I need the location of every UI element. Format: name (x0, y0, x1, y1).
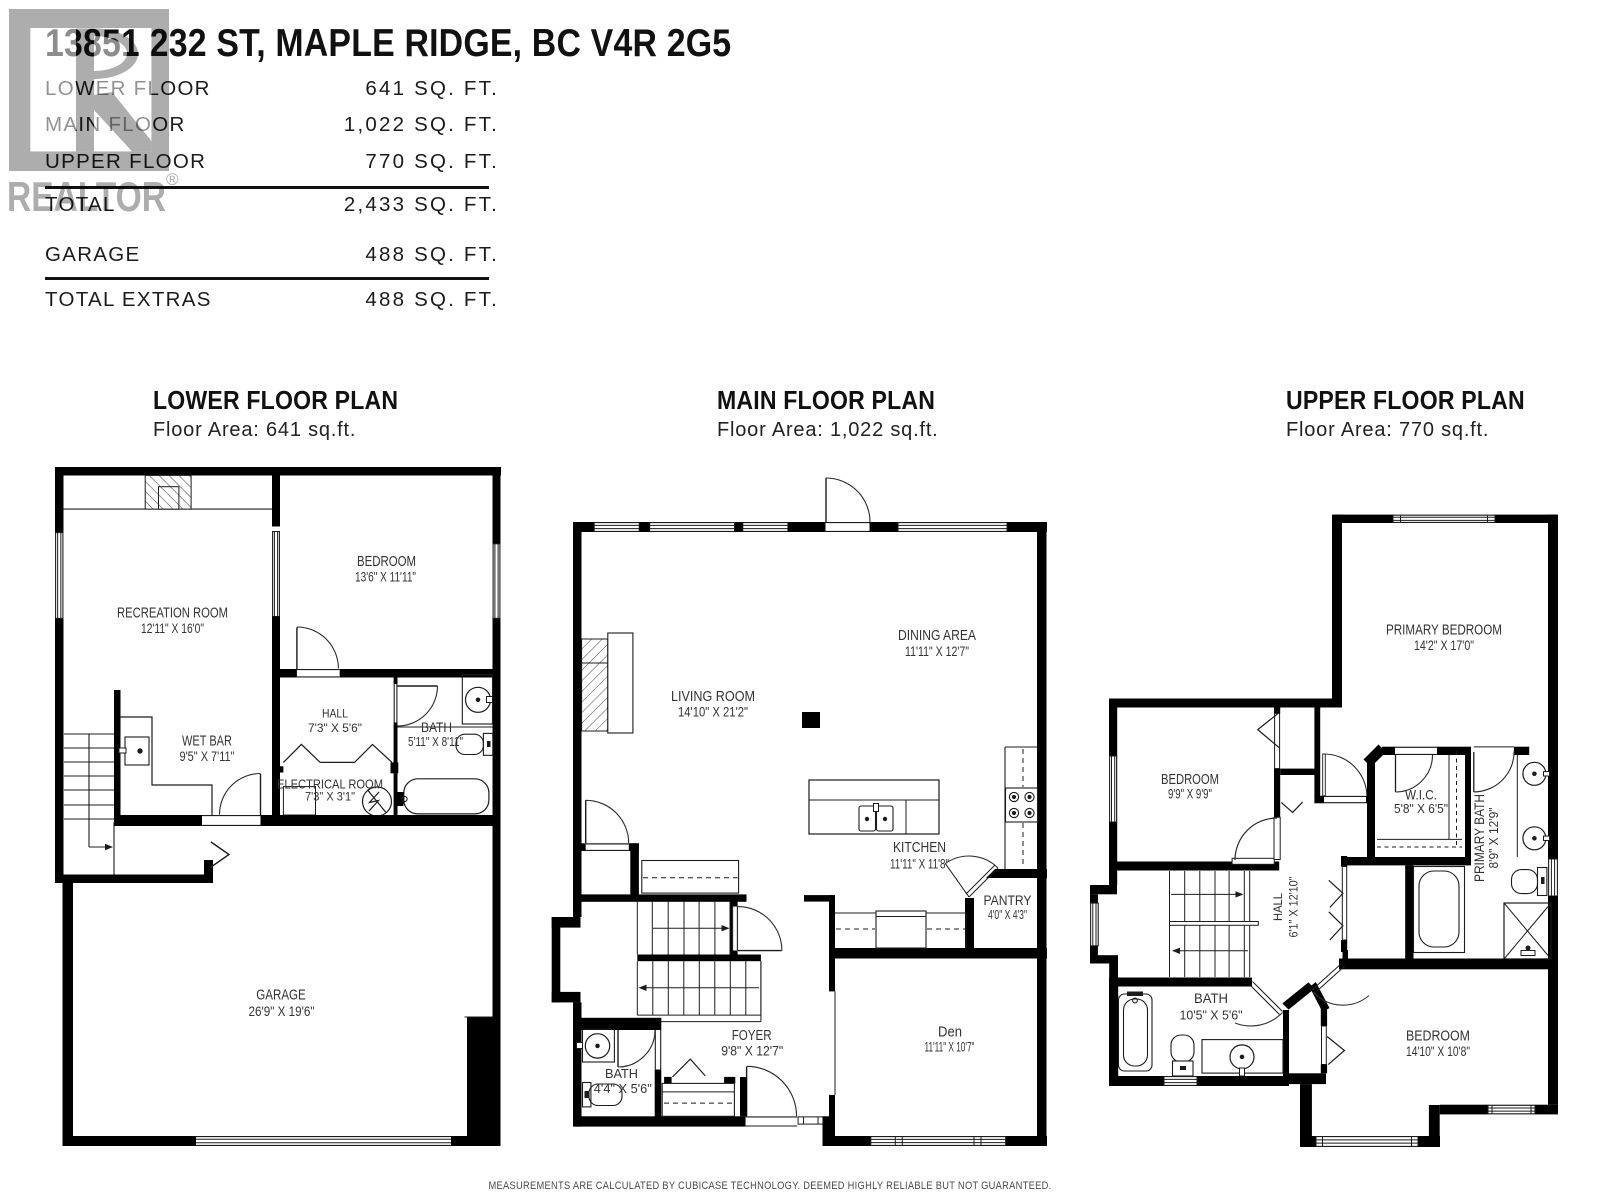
svg-text:HALL: HALL (1271, 893, 1285, 921)
svg-text:10'5" X 5'6": 10'5" X 5'6" (1180, 1008, 1243, 1023)
svg-text:Den: Den (938, 1024, 962, 1041)
svg-text:7'3" X 3'1": 7'3" X 3'1" (305, 790, 355, 804)
svg-text:26'9" X 19'6": 26'9" X 19'6" (249, 1004, 315, 1019)
svg-text:BEDROOM: BEDROOM (1161, 771, 1219, 788)
svg-text:BATH: BATH (1194, 990, 1228, 1006)
svg-text:9'9" X 9'9": 9'9" X 9'9" (1168, 787, 1212, 802)
svg-text:12'11" X 16'0": 12'11" X 16'0" (141, 621, 204, 636)
svg-text:4'0" X 4'3": 4'0" X 4'3" (988, 907, 1027, 922)
svg-text:4'4" X 5'6": 4'4" X 5'6" (594, 1081, 652, 1096)
svg-text:LIVING ROOM: LIVING ROOM (671, 688, 755, 705)
svg-text:WET BAR: WET BAR (182, 733, 232, 750)
svg-text:PANTRY: PANTRY (984, 892, 1033, 908)
svg-text:5'8" X 6'5": 5'8" X 6'5" (1394, 801, 1448, 816)
svg-text:11'11" X 11'8": 11'11" X 11'8" (890, 857, 949, 872)
svg-text:BATH: BATH (421, 719, 452, 735)
svg-text:7'3" X 5'6": 7'3" X 5'6" (308, 723, 362, 735)
svg-text:FOYER: FOYER (732, 1027, 772, 1044)
svg-text:HALL: HALL (322, 709, 349, 721)
svg-text:PRIMARY BEDROOM: PRIMARY BEDROOM (1386, 622, 1502, 639)
svg-text:6'1" X 12'10": 6'1" X 12'10" (1287, 877, 1301, 938)
svg-text:DINING AREA: DINING AREA (898, 627, 976, 644)
svg-text:13'6" X 11'11": 13'6" X 11'11" (355, 570, 416, 585)
svg-text:14'2" X 17'0": 14'2" X 17'0" (1414, 638, 1474, 653)
svg-text:14'10" X 10'8": 14'10" X 10'8" (1406, 1044, 1470, 1059)
svg-text:KITCHEN: KITCHEN (893, 839, 946, 856)
svg-text:11'11" X 12'7": 11'11" X 12'7" (905, 644, 969, 659)
svg-text:14'10" X 21'2": 14'10" X 21'2" (678, 705, 748, 720)
svg-text:9'8" X 12'7": 9'8" X 12'7" (721, 1044, 783, 1059)
svg-text:8'9" X 12'9": 8'9" X 12'9" (1486, 807, 1501, 868)
svg-text:RECREATION ROOM: RECREATION ROOM (117, 605, 228, 622)
svg-text:BEDROOM: BEDROOM (1406, 1028, 1470, 1045)
svg-text:PRIMARY BATH: PRIMARY BATH (1471, 794, 1487, 882)
svg-text:BATH: BATH (605, 1066, 638, 1081)
svg-text:GARAGE: GARAGE (256, 987, 306, 1004)
svg-text:5'11" X 8'11": 5'11" X 8'11" (408, 734, 463, 749)
svg-text:9'5" X 7'11": 9'5" X 7'11" (180, 749, 235, 764)
svg-text:BEDROOM: BEDROOM (357, 553, 416, 570)
svg-text:11'11" X 10'7": 11'11" X 10'7" (925, 1040, 975, 1055)
